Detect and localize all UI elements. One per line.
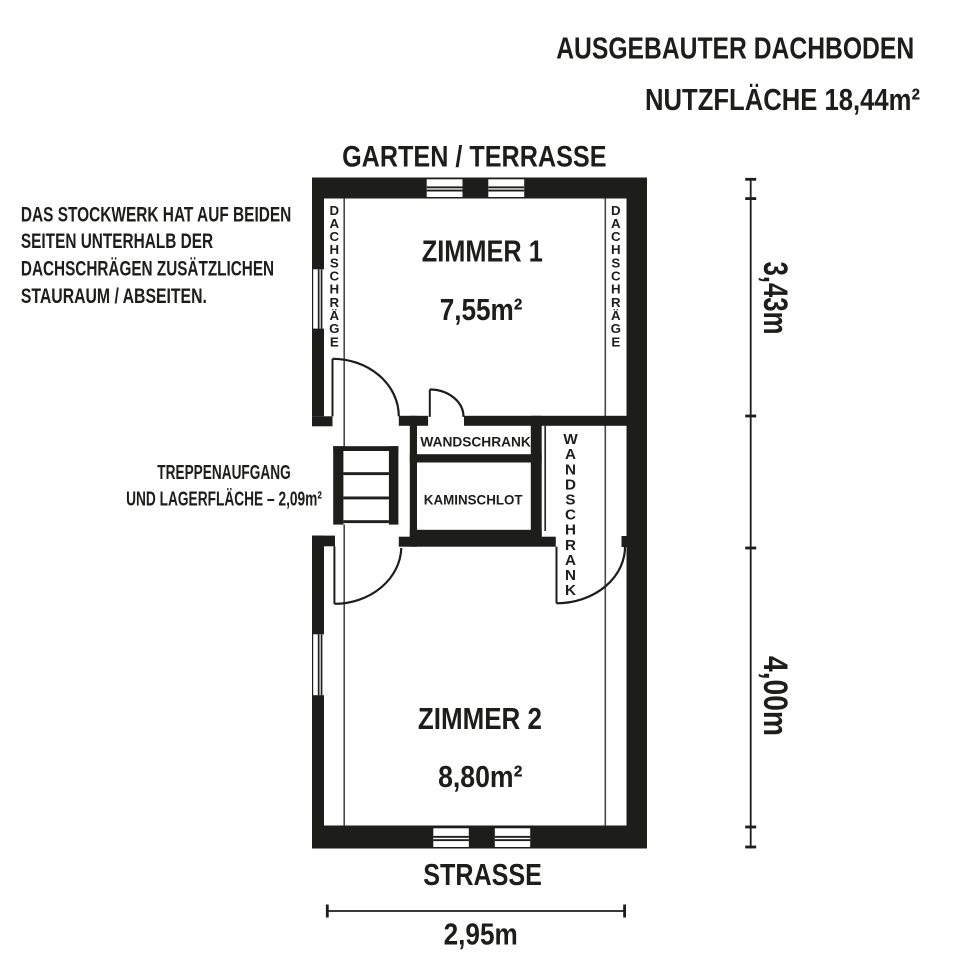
svg-text:NUTZFLÄCHE 18,44m²: NUTZFLÄCHE 18,44m² bbox=[645, 84, 920, 117]
svg-text:K: K bbox=[565, 582, 576, 599]
svg-text:SEITEN UNTERHALB DER: SEITEN UNTERHALB DER bbox=[21, 229, 214, 253]
svg-text:2,95m: 2,95m bbox=[444, 918, 518, 952]
svg-text:DACHSCHRÄGEN ZUSÄTZLICHEN: DACHSCHRÄGEN ZUSÄTZLICHEN bbox=[21, 257, 274, 281]
svg-text:E: E bbox=[611, 334, 620, 349]
svg-text:8,80m²: 8,80m² bbox=[438, 760, 522, 794]
svg-text:GARTEN / TERRASSE: GARTEN / TERRASSE bbox=[342, 141, 606, 174]
svg-text:TREPPENAUFGANG: TREPPENAUFGANG bbox=[157, 462, 290, 484]
svg-text:4,00m: 4,00m bbox=[756, 656, 794, 736]
svg-text:STAURAUM / ABSEITEN.: STAURAUM / ABSEITEN. bbox=[21, 284, 207, 308]
svg-text:STRASSE: STRASSE bbox=[423, 858, 542, 892]
svg-text:7,55m²: 7,55m² bbox=[440, 293, 523, 327]
svg-text:E: E bbox=[330, 334, 339, 349]
svg-text:DAS STOCKWERK HAT AUF BEIDEN: DAS STOCKWERK HAT AUF BEIDEN bbox=[21, 203, 291, 227]
svg-text:AUSGEBAUTER DACHBODEN: AUSGEBAUTER DACHBODEN bbox=[556, 33, 914, 66]
svg-text:ZIMMER 2: ZIMMER 2 bbox=[418, 702, 542, 736]
svg-text:KAMINSCHLOT: KAMINSCHLOT bbox=[424, 493, 523, 509]
svg-text:3,43m: 3,43m bbox=[756, 262, 794, 335]
svg-text:UND LAGERFLÄCHE – 2,09m²: UND LAGERFLÄCHE – 2,09m² bbox=[126, 487, 322, 510]
svg-text:ZIMMER 1: ZIMMER 1 bbox=[422, 234, 543, 268]
svg-text:WANDSCHRANK: WANDSCHRANK bbox=[420, 434, 531, 450]
